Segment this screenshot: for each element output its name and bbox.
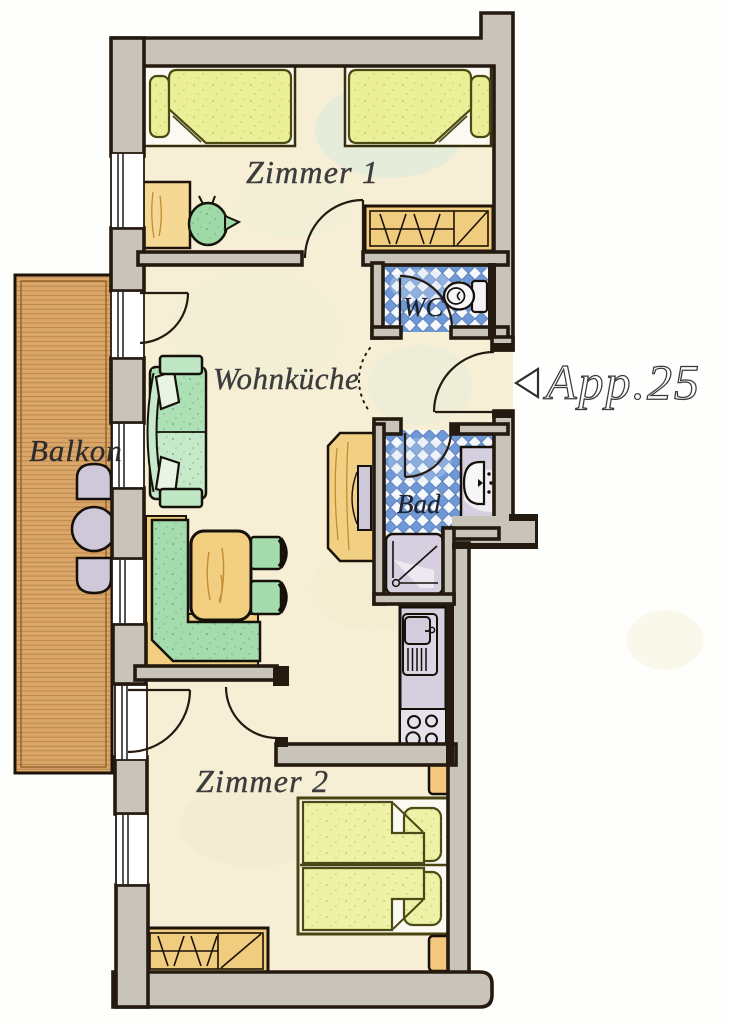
svg-text:App.25: App.25 (543, 354, 701, 410)
svg-text:Balkon: Balkon (29, 433, 123, 468)
svg-text:Zimmer 1: Zimmer 1 (246, 154, 379, 190)
svg-text:Zimmer 2: Zimmer 2 (196, 763, 329, 799)
svg-text:WC: WC (403, 292, 444, 322)
svg-text:Bad: Bad (397, 489, 441, 519)
svg-text:Wohnküche: Wohnküche (213, 361, 359, 396)
